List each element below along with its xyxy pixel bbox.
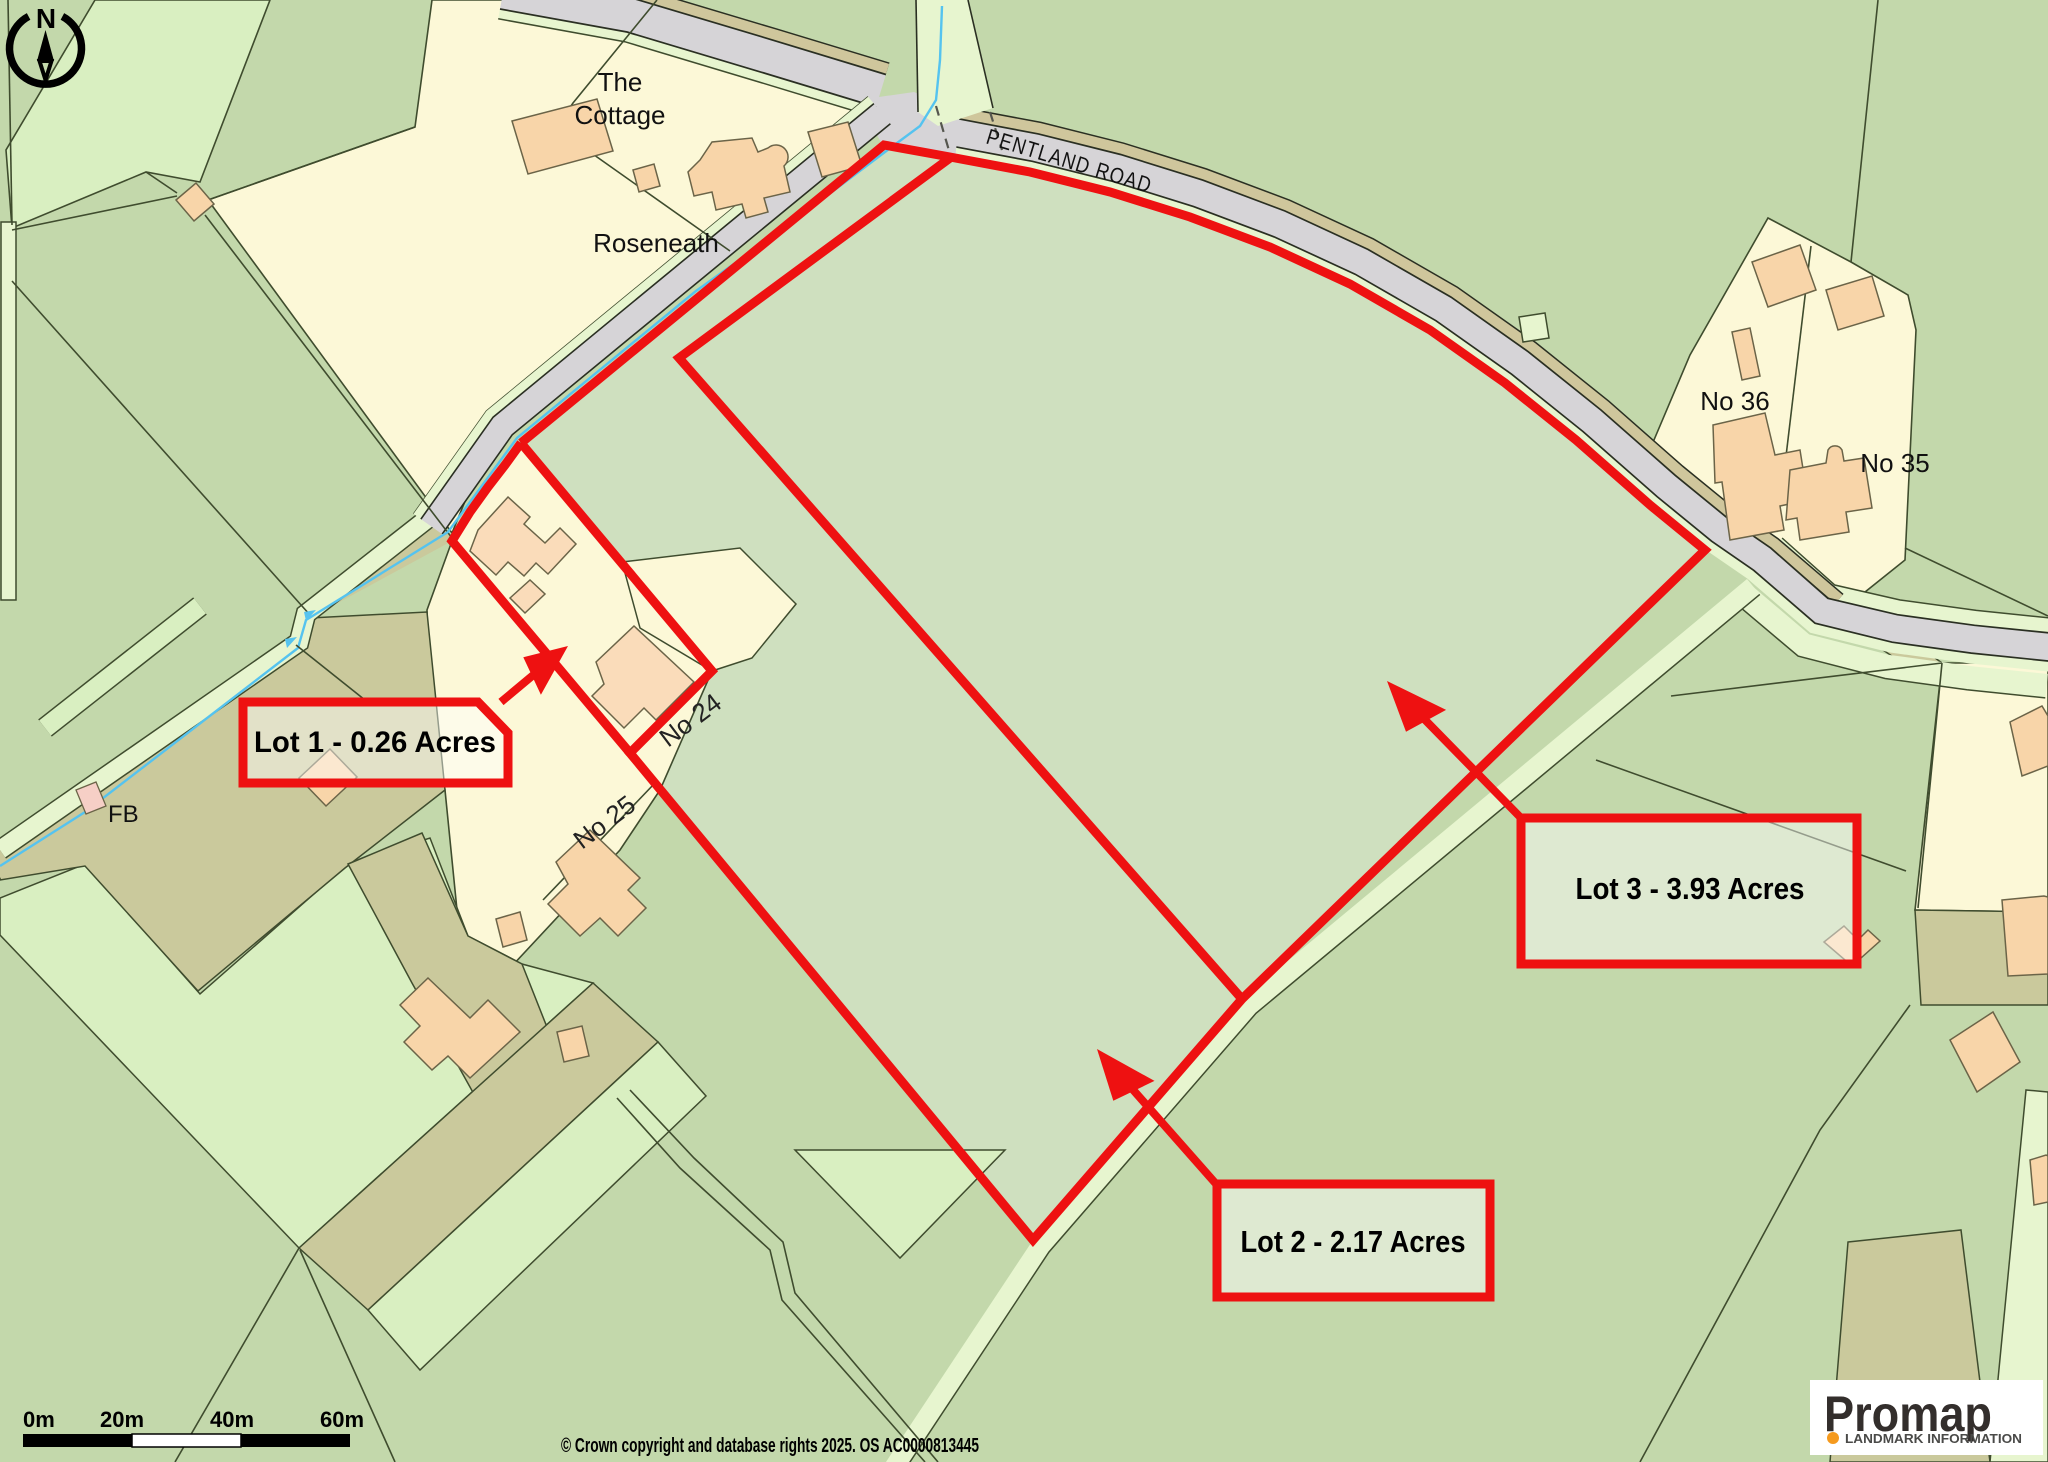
svg-text:No 35: No 35 <box>1860 448 1929 478</box>
svg-text:No 36: No 36 <box>1700 386 1769 416</box>
svg-text:40m: 40m <box>210 1407 254 1432</box>
svg-text:© Crown copyright and database: © Crown copyright and database rights 20… <box>561 1435 979 1457</box>
svg-text:LANDMARK INFORMATION: LANDMARK INFORMATION <box>1845 1431 2022 1446</box>
svg-text:Lot 3 - 3.93 Acres: Lot 3 - 3.93 Acres <box>1576 871 1805 906</box>
svg-text:The: The <box>598 67 643 97</box>
svg-text:0m: 0m <box>23 1407 55 1432</box>
svg-text:FB: FB <box>108 801 139 828</box>
svg-text:Lot 1 - 0.26 Acres: Lot 1 - 0.26 Acres <box>254 726 496 759</box>
svg-text:Cottage: Cottage <box>574 100 665 130</box>
svg-text:N: N <box>36 3 56 34</box>
svg-text:60m: 60m <box>320 1407 364 1432</box>
svg-text:Lot 2 - 2.17 Acres: Lot 2 - 2.17 Acres <box>1241 1224 1466 1259</box>
svg-text:20m: 20m <box>100 1407 144 1432</box>
svg-text:Roseneath: Roseneath <box>593 228 719 258</box>
